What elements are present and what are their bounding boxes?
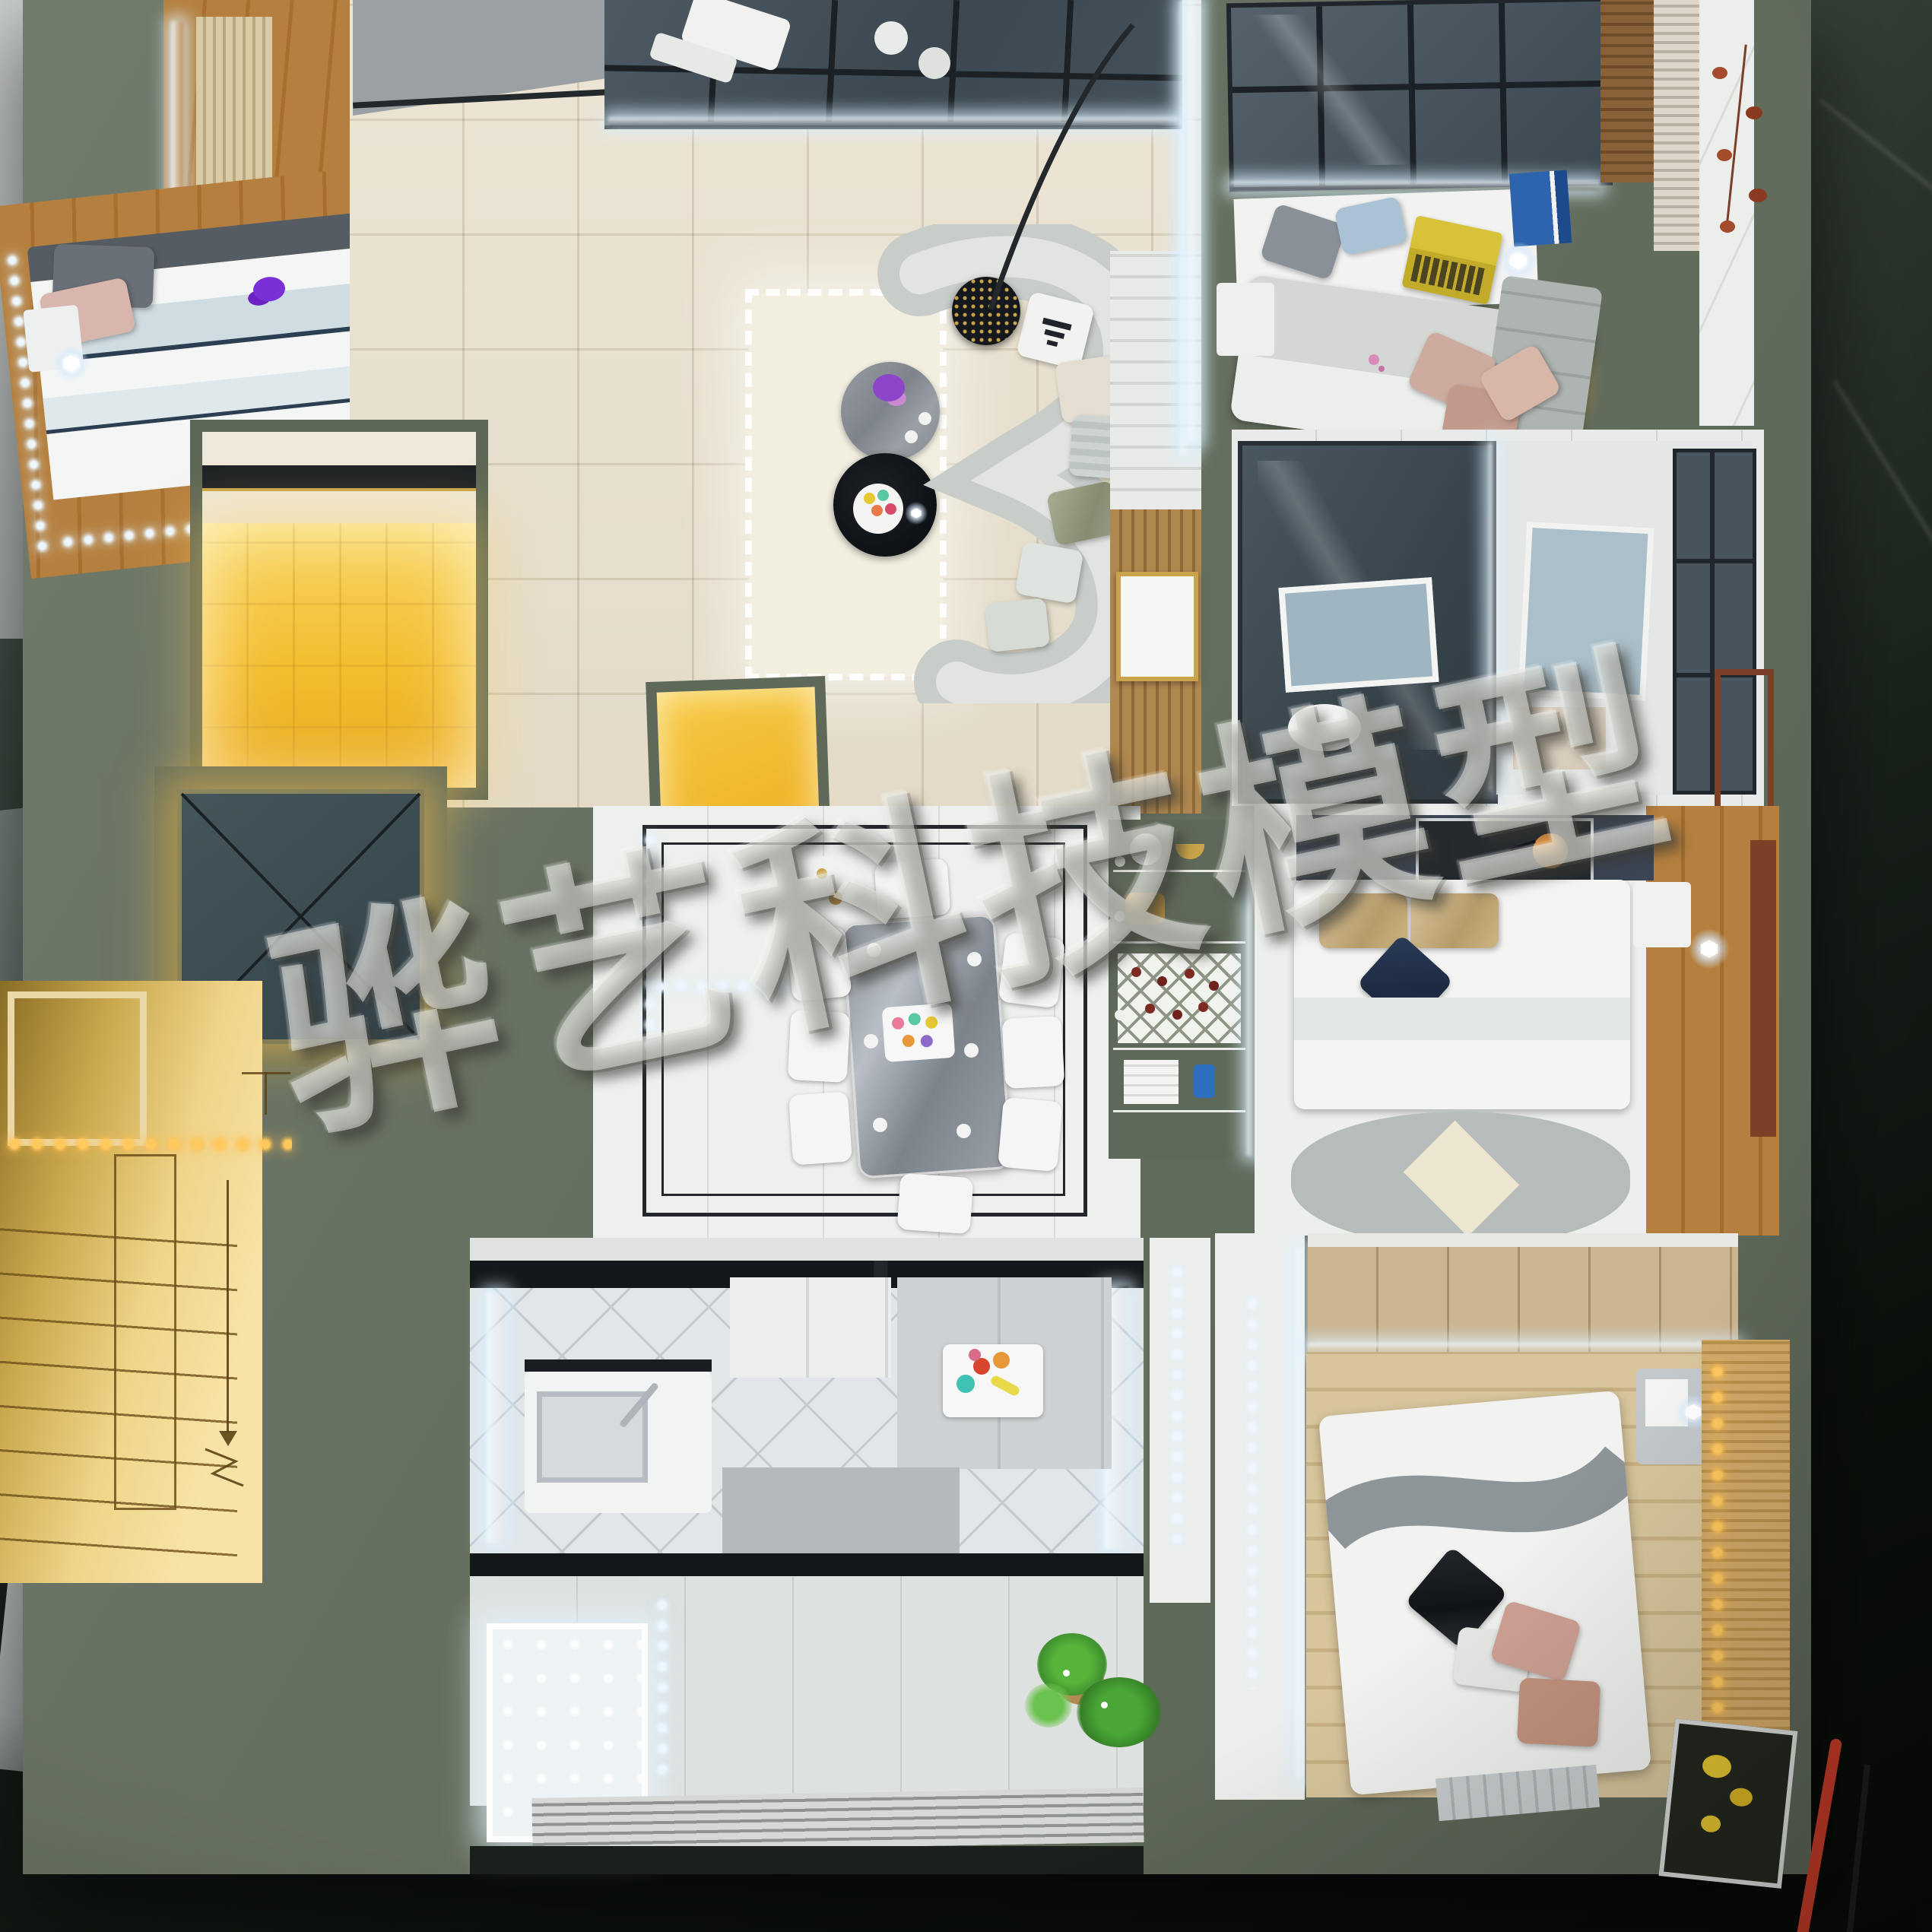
corridor-led-column [1169,1262,1185,1551]
stair-direction-line [227,1180,229,1432]
master-bed [1318,1391,1651,1796]
master-pillow-blush [1517,1677,1600,1746]
dining-chair [788,1010,851,1083]
skylight-reflection [1254,12,1408,167]
master-led-column [1244,1294,1261,1689]
art-leaf-yellow [1729,1787,1753,1807]
gold-bowl [1175,844,1204,859]
tr-crystal-pendant [1499,242,1537,280]
fruit-orange [993,1352,1010,1369]
mr-art-frame [1416,818,1594,884]
skylight-mullion [1407,5,1416,184]
mr-bed-band [1294,998,1630,1040]
bathroom-vanity [1513,707,1606,769]
sofa-pillow-gray [1015,541,1084,604]
glass-sphere-decor [1130,833,1162,865]
master-wardrobe-led [1308,1343,1738,1352]
brown-door-frame [1715,669,1774,820]
dining-chair [785,926,852,1002]
balcony-stool [874,21,908,55]
kitchen-island [722,1467,960,1554]
tr-skylight [1226,0,1613,192]
kitchen-led-left [487,1293,505,1543]
cabinet-shelf [1113,1048,1245,1050]
wine-glass [1115,1010,1125,1020]
bathroom-mirror-two [1518,522,1654,701]
skylight-mullion [1499,3,1508,182]
marble-vein [1833,380,1932,717]
window-bar [1677,559,1753,563]
bedside-crystal-lamp [51,344,91,384]
wine-glass [1115,911,1125,922]
wine-bottle [1157,976,1167,986]
sofa-pillow-white [985,598,1050,652]
master-warm-led-column [1708,1361,1727,1778]
bathroom-sink [1288,704,1361,751]
plant-leaves [1077,1677,1162,1747]
atrium-room [190,420,488,800]
entry-console [806,856,855,920]
stair-landing-outline [114,1154,176,1510]
dining-chair [998,932,1066,1009]
fruit-teal [956,1375,975,1393]
staircase-zone [0,981,262,1583]
marble-vein [1820,100,1932,298]
mr-pillow-gold [1410,893,1499,948]
art-leaf-yellow [1700,1814,1721,1833]
wine-bottle [1185,969,1194,979]
mr-crystal-pendant [1689,929,1729,969]
balcony-railing [531,1788,1144,1853]
wine-glass [1115,856,1125,867]
stair-break-symbol [199,1442,252,1495]
balcony-bottom-edge [470,1846,1144,1874]
tr-wood-beam-ceiling [1600,0,1654,182]
gold-decor [817,868,827,879]
dining-led-column [642,830,658,1064]
gold-decor [829,891,842,905]
wine-bottle [1209,981,1219,991]
wine-cabinet [1109,820,1250,1159]
bathroom-two [1496,441,1752,795]
blue-bottle [1194,1064,1215,1098]
dining-chair [1002,1016,1065,1089]
plant-flower [1101,1702,1108,1708]
bathroom-mirror [1278,577,1439,693]
art-bird [1510,840,1536,851]
art-leaf-yellow [1702,1753,1733,1779]
kitchen-ceiling-strip [470,1238,1144,1261]
macaron [920,1035,933,1048]
macaron [908,1013,921,1026]
tr-slat-wall [1654,0,1699,251]
balcony-stool [918,47,950,79]
book-stack-blue [1509,170,1572,246]
gold-ornament [1125,893,1165,925]
hanging-leaf [1746,106,1762,119]
hanging-leaf [1749,189,1767,202]
hanging-leaf [1720,220,1735,233]
book-stack [1124,1060,1179,1104]
dessert-tray [882,1003,956,1062]
macaron [892,1017,905,1029]
cabinet-shelf [1113,941,1245,944]
mr-nightstand [1633,882,1691,947]
dinner-plate [956,1124,971,1138]
laptop-keyboard [1410,254,1486,296]
bath-divider-glow [1489,443,1496,791]
wine-lattice-rack [1118,953,1241,1043]
mr-pillow-gold [1319,893,1407,948]
fruit-pink [969,1349,981,1361]
stair-door-frame [8,991,147,1146]
master-wardrobe [1308,1233,1738,1358]
dinner-plate [864,1034,878,1048]
art-sun [1533,833,1568,868]
cabinet-shelf [1113,1110,1245,1112]
tr-bedroom-led [1188,0,1200,441]
atrium-gold-line [202,488,476,491]
master-artwork [1659,1718,1798,1889]
balcony-led-column [654,1595,671,1781]
plant-flower [1063,1670,1070,1677]
dining-chair [998,1097,1063,1172]
hanging-leaf [1717,149,1732,161]
orchid-flower [1369,354,1379,365]
wine-bottle [1145,1004,1155,1014]
dining-chair [788,1091,852,1165]
hanging-leaf [1712,67,1727,79]
wine-bottle [1172,1010,1182,1020]
stair-t-mark [265,1072,267,1115]
dinner-plate [867,943,881,957]
wine-bottle [1131,967,1141,977]
tr-bedside [1217,283,1274,356]
kitchen-sink [537,1391,648,1483]
wine-bottle [1198,1002,1208,1012]
photo-stage: Windows 7 [0,0,1932,1932]
black-cable [1846,1764,1870,1932]
macaron [925,1016,938,1029]
fruit-tray [943,1344,1043,1417]
gold-art-frame [1116,572,1198,681]
dining-chair [874,858,951,920]
mr-door-frame [1750,840,1776,1137]
dinner-plate [964,1043,979,1058]
dinner-plate [967,952,982,966]
stair-warm-leds [5,1134,292,1154]
kitchen-counter-edge [525,1359,712,1372]
master-glow-strip [1296,1247,1306,1779]
dinner-plate [873,1118,887,1132]
dining-chair [897,1173,974,1235]
fruit-banana [989,1374,1020,1397]
macaron [902,1034,915,1047]
atrium-dark-band [202,465,476,488]
bathroom-glass-room [1238,441,1498,804]
cabinet-shelf [1113,870,1245,872]
balcony-black-band [470,1553,1144,1576]
plant-leaves [1025,1683,1072,1727]
atrium-lightwell [202,523,476,788]
kitchen-upper-cabinet [730,1277,891,1378]
